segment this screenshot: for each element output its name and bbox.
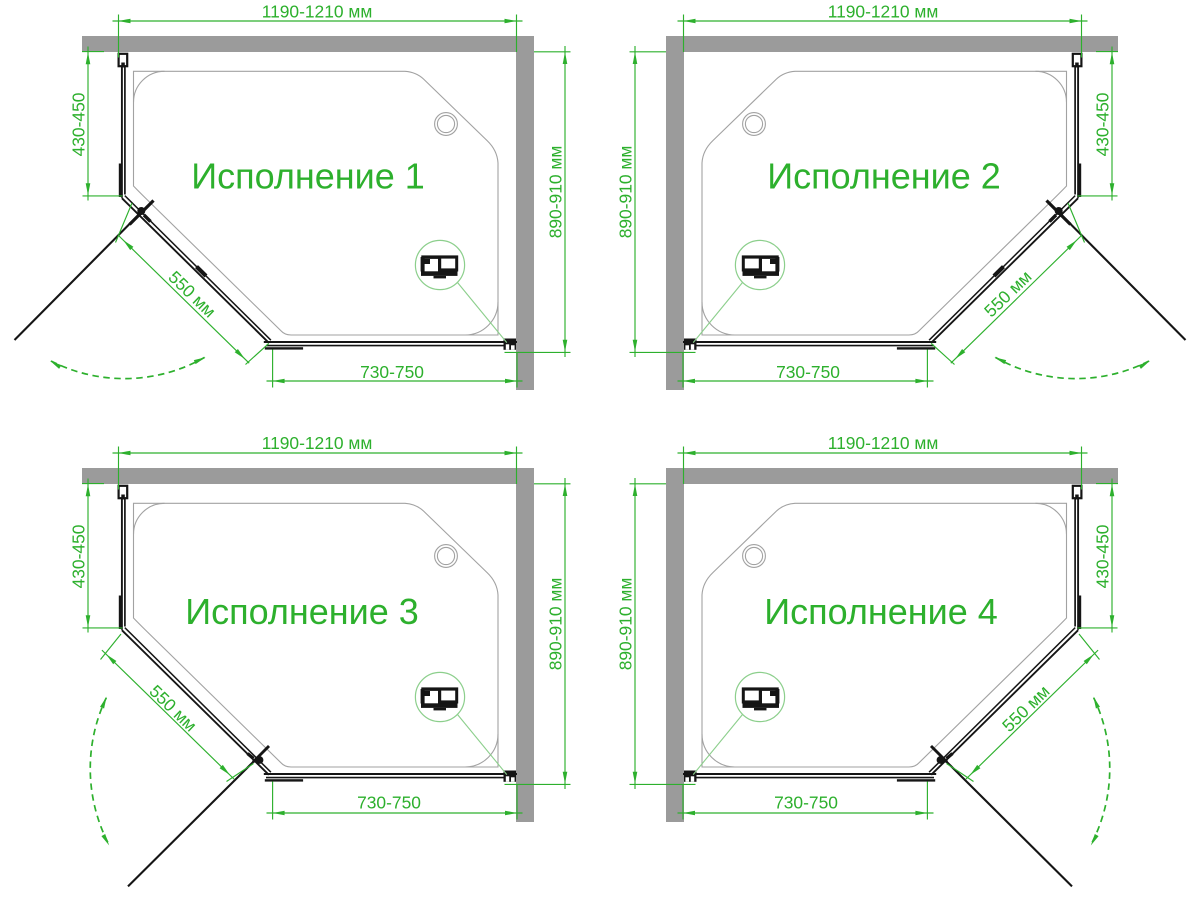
svg-text:430-450: 430-450 xyxy=(69,525,89,589)
svg-text:Исполнение 1: Исполнение 1 xyxy=(191,156,425,197)
svg-text:1190-1210 мм: 1190-1210 мм xyxy=(828,2,939,22)
svg-text:890-910 мм: 890-910 мм xyxy=(616,578,636,671)
svg-text:430-450: 430-450 xyxy=(69,93,89,157)
svg-text:550 мм: 550 мм xyxy=(980,266,1035,321)
svg-text:1190-1210 мм: 1190-1210 мм xyxy=(828,433,939,453)
svg-text:730-750: 730-750 xyxy=(360,362,424,382)
svg-text:Исполнение 3: Исполнение 3 xyxy=(185,591,419,632)
svg-text:Исполнение 2: Исполнение 2 xyxy=(767,156,1001,197)
svg-text:550 мм: 550 мм xyxy=(165,267,220,322)
svg-text:1190-1210 мм: 1190-1210 мм xyxy=(262,2,373,22)
svg-text:1190-1210 мм: 1190-1210 мм xyxy=(262,433,373,453)
svg-text:890-910 мм: 890-910 мм xyxy=(546,578,566,671)
svg-text:730-750: 730-750 xyxy=(357,793,421,813)
svg-text:430-450: 430-450 xyxy=(1093,525,1113,589)
svg-text:Исполнение 4: Исполнение 4 xyxy=(764,591,998,632)
svg-text:550 мм: 550 мм xyxy=(998,681,1053,736)
svg-text:430-450: 430-450 xyxy=(1093,93,1113,157)
svg-text:730-750: 730-750 xyxy=(774,793,838,813)
svg-text:730-750: 730-750 xyxy=(776,362,840,382)
svg-text:890-910 мм: 890-910 мм xyxy=(546,146,566,239)
svg-text:890-910 мм: 890-910 мм xyxy=(616,146,636,239)
svg-text:550 мм: 550 мм xyxy=(146,681,201,736)
